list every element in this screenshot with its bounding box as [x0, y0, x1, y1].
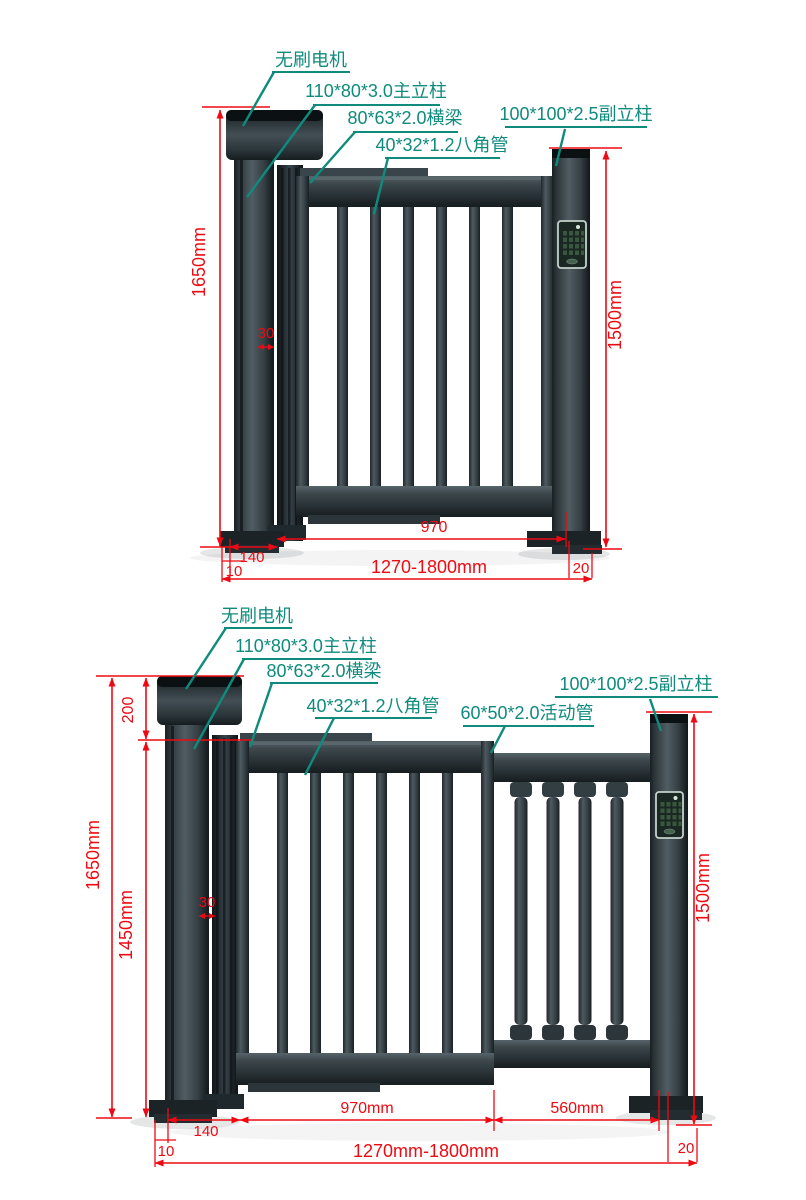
label-main-post: 110*80*3.0主立柱 — [305, 81, 447, 101]
label-octagonal-tube: 40*32*1.2八角管 — [306, 696, 439, 716]
label-octagonal-tube: 40*32*1.2八角管 — [375, 135, 508, 155]
dim-total-height: 1650mm — [83, 820, 103, 890]
bottom-diagram: 1650mm 200 1450mm 1500mm 970mm 560mm 140… — [83, 606, 718, 1167]
dim-gap: 30 — [258, 325, 275, 342]
dim-base-right: 20 — [573, 560, 590, 577]
bottom-rail — [296, 486, 554, 517]
dim-post-offset: 140 — [239, 549, 264, 566]
dim-leaf-height: 1450mm — [116, 890, 136, 960]
leaf-right-stile — [481, 741, 494, 1085]
gate-leaf — [296, 168, 554, 524]
aux-post — [650, 714, 688, 1104]
bottom-rail-skirt — [248, 1083, 380, 1092]
movable-bottom-rail — [494, 1040, 652, 1068]
top-diagram: 1650mm 1500mm 970 140 10 1270-1800mm 20 … — [189, 50, 653, 582]
label-beam: 80*63*2.0横梁 — [266, 661, 381, 681]
leaf-left-stile — [236, 741, 249, 1085]
dim-base-left: 10 — [158, 1143, 175, 1160]
movable-section — [494, 753, 652, 1068]
leaf-left-stile — [296, 176, 309, 517]
gate-diagram-canvas: 1650mm 1500mm 970 140 10 1270-1800mm 20 … — [0, 0, 806, 1200]
label-movable-tube: 60*50*2.0活动管 — [460, 703, 593, 723]
leaf-bars — [337, 207, 513, 486]
top-rail — [296, 176, 554, 207]
label-aux-post: 100*100*2.5副立柱 — [499, 104, 652, 124]
hinge-stile — [212, 735, 238, 1099]
ground-shadow — [170, 1123, 670, 1141]
dim-post-offset: 140 — [193, 1123, 218, 1140]
keypad-indicator — [674, 796, 678, 800]
dim-gap: 30 — [199, 894, 216, 911]
dim-base-right: 20 — [678, 1140, 695, 1157]
gate-spec-sheet: 1650mm 1500mm 970 140 10 1270-1800mm 20 … — [0, 0, 806, 1200]
top-rail — [236, 741, 494, 773]
label-motor: 无刷电机 — [221, 606, 293, 626]
keypad — [558, 221, 586, 268]
aux-post — [552, 149, 590, 540]
label-main-post: 110*80*3.0主立柱 — [235, 636, 377, 656]
keypad — [656, 792, 683, 838]
gate-leaf — [236, 733, 494, 1092]
dim-width-range: 1270mm-1800mm — [353, 1141, 499, 1161]
top-rail-highlight — [236, 742, 494, 745]
top-rail-cap — [240, 733, 372, 742]
label-beam: 80*63*2.0横梁 — [347, 108, 462, 128]
dim-movable-width: 560mm — [550, 1100, 603, 1117]
label-motor: 无刷电机 — [275, 50, 347, 70]
dim-leaf-width: 970mm — [340, 1100, 393, 1117]
dim-total-height: 1650mm — [189, 227, 209, 297]
main-post — [165, 722, 209, 1106]
top-rail-highlight — [296, 177, 554, 180]
bottom-rail — [236, 1053, 494, 1085]
label-aux-post: 100*100*2.5副立柱 — [559, 674, 712, 694]
movable-top-rail — [494, 753, 652, 782]
keypad-indicator — [576, 225, 580, 229]
dim-aux-post-height: 1500mm — [693, 853, 713, 923]
motor-head — [226, 110, 323, 160]
movable-tubes — [510, 782, 628, 1040]
dim-aux-post-height: 1500mm — [605, 280, 625, 350]
dim-motor-height: 200 — [120, 697, 137, 724]
dim-base-left: 10 — [226, 563, 243, 580]
dim-leaf-width: 970 — [421, 519, 448, 536]
leaf-bars — [277, 773, 453, 1053]
dim-width-range: 1270-1800mm — [371, 557, 487, 577]
